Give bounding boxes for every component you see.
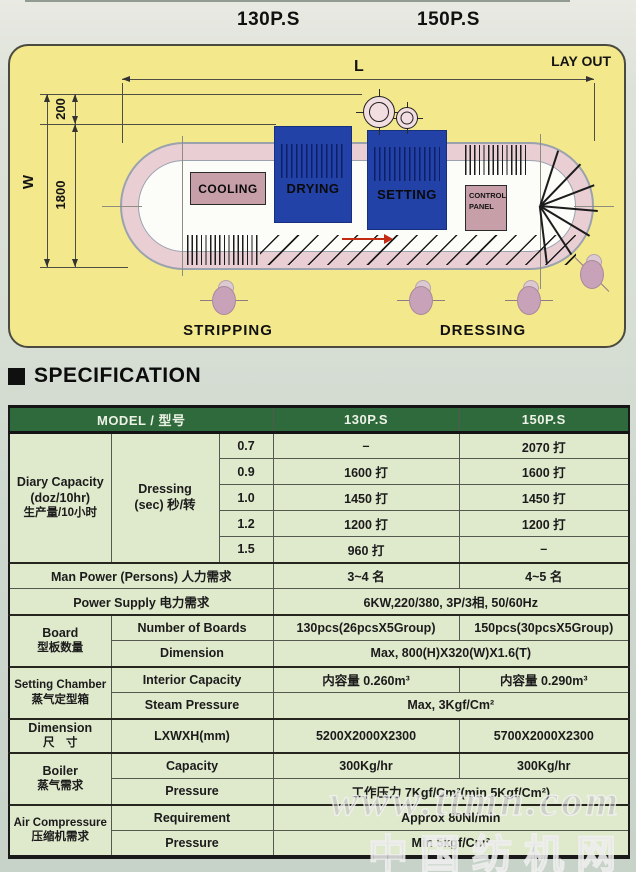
control-panel-label: CONTROL PANEL [469, 191, 506, 211]
header-130ps: 130P.S [273, 407, 459, 433]
centerline [102, 206, 142, 207]
cell-air-compressure: Air Compressure 压缩机需求 [9, 805, 111, 857]
dim-label-1800: 1800 [53, 165, 67, 225]
cell-number-of-boards: Number of Boards [111, 615, 273, 641]
boiler-line2: 蒸气需求 [12, 779, 109, 793]
dim-label-W: W [20, 152, 34, 212]
board-hatch-top [465, 145, 527, 175]
board-line2: 型板数量 [12, 641, 109, 655]
cell-value-130: 960 打 [273, 537, 459, 563]
control-panel-station: CONTROL PANEL [465, 185, 507, 231]
cell-boiler-capacity: Capacity [111, 753, 273, 779]
worker-figure [397, 284, 445, 318]
extension-line [122, 83, 123, 143]
setting-label: SETTING [377, 187, 437, 202]
cell-speed: 1.2 [219, 511, 273, 537]
cell-board-dimension-value: Max, 800(H)X320(W)X1.6(T) [273, 641, 629, 667]
diary-line3: 生产量/10小时 [12, 506, 109, 520]
board-slashes-bottom [260, 235, 576, 265]
dressing-line2: (sec) 秒/转 [114, 498, 217, 514]
chamber-line2: 蒸气定型箱 [12, 693, 109, 707]
cooling-station: COOLING [190, 172, 266, 205]
header-model: MODEL / 型号 [9, 407, 273, 433]
cell-value-150: – [459, 537, 629, 563]
dim-label-L: L [354, 58, 364, 76]
arrowhead-icon [122, 76, 130, 82]
flow-direction-arrow [342, 238, 384, 240]
board-hatch-bottom [187, 235, 259, 265]
cell-power-supply: Power Supply 电力需求 [9, 589, 273, 615]
extension-line [594, 83, 595, 141]
cooling-label: COOLING [198, 182, 258, 196]
cell-value-130: 300Kg/hr [273, 753, 459, 779]
specification-table: MODEL / 型号 130P.S 150P.S Diary Capacity … [8, 405, 630, 859]
cell-value-130: 内容量 0.260m³ [273, 667, 459, 693]
cell-boiler-pressure-value: 工作压力 7Kgf/Cm²(min 5Kgf/Cm²) [273, 779, 629, 805]
cell-value-150: 2070 打 [459, 433, 629, 459]
arrowhead-icon [72, 94, 78, 102]
specification-title: SPECIFICATION [34, 364, 201, 388]
setting-station: SETTING [367, 130, 447, 230]
cell-value-130: 130pcs(26pcsX5Group) [273, 615, 459, 641]
extension-line [40, 267, 128, 268]
cell-diary-capacity: Diary Capacity (doz/10hr) 生产量/10小时 [9, 433, 111, 563]
worker-figure [200, 284, 248, 318]
table-row: Diary Capacity (doz/10hr) 生产量/10小时 Dress… [9, 433, 629, 459]
board-line1: Board [12, 626, 109, 642]
air-line2: 压缩机需求 [12, 830, 109, 844]
cell-board: Board 型板数量 [9, 615, 111, 667]
stripping-position-label: STRIPPING [158, 322, 298, 339]
air-line1: Air Compressure [12, 816, 109, 830]
cell-boiler-pressure: Pressure [111, 779, 273, 805]
cell-dressing: Dressing (sec) 秒/转 [111, 433, 219, 563]
cell-value-150: 4~5 名 [459, 563, 629, 589]
spec-sheet-page: 130P.S 150P.S LAY OUT L 200 1800 W [0, 0, 636, 872]
dressing-position-label: DRESSING [413, 322, 553, 339]
cell-value-150: 5700X2000X2300 [459, 719, 629, 753]
centerline [182, 136, 183, 276]
model-title-130: 130P.S [237, 9, 300, 31]
model-title-150: 150P.S [417, 9, 480, 31]
dim-line-L [122, 79, 594, 80]
cell-value-150: 1600 打 [459, 459, 629, 485]
arrowhead-icon [72, 124, 78, 132]
cell-value-150: 1450 打 [459, 485, 629, 511]
cell-value-150: 150pcs(30pcsX5Group) [459, 615, 629, 641]
cell-value-130: 1200 打 [273, 511, 459, 537]
layout-diagram-panel: LAY OUT L 200 1800 W [8, 44, 626, 348]
cell-value-130: 5200X2000X2300 [273, 719, 459, 753]
centerline [574, 206, 614, 207]
drying-hatch [281, 144, 345, 178]
cell-value-130: 3~4 名 [273, 563, 459, 589]
boiler-line1: Boiler [12, 764, 109, 780]
steam-fan-icon [363, 96, 395, 128]
cell-air-requirement-value: Approx 80Nl/min [273, 805, 629, 831]
arrowhead-icon [44, 259, 50, 267]
cell-boiler: Boiler 蒸气需求 [9, 753, 111, 805]
cell-speed: 0.7 [219, 433, 273, 459]
cell-value-130: – [273, 433, 459, 459]
setting-hatch [374, 147, 440, 181]
arrowhead-icon [72, 116, 78, 124]
cell-value-150: 300Kg/hr [459, 753, 629, 779]
scan-edge-line [25, 0, 570, 2]
table-row: Power Supply 电力需求 6KW,220/380, 3P/3相, 50… [9, 589, 629, 615]
cell-steam-pressure: Steam Pressure [111, 693, 273, 719]
cell-interior-capacity: Interior Capacity [111, 667, 273, 693]
table-row: Setting Chamber 蒸气定型箱 Interior Capacity … [9, 667, 629, 693]
cell-speed: 1.0 [219, 485, 273, 511]
worker-figure [568, 258, 616, 292]
dimension-line1: Dimension [12, 721, 109, 737]
cell-man-power: Man Power (Persons) 人力需求 [9, 563, 273, 589]
drying-label: DRYING [286, 181, 339, 196]
cell-air-pressure-value: Min 5kgf/Cm² [273, 831, 629, 857]
table-row: Board 型板数量 Number of Boards 130pcs(26pcs… [9, 615, 629, 641]
worker-figure [505, 284, 553, 318]
table-row: Air Compressure 压缩机需求 Requirement Approx… [9, 805, 629, 831]
extension-line [40, 94, 362, 95]
table-row: Man Power (Persons) 人力需求 3~4 名 4~5 名 [9, 563, 629, 589]
dim-line-W [47, 94, 48, 267]
square-bullet-icon [8, 368, 25, 385]
cell-speed: 1.5 [219, 537, 273, 563]
cell-dimension: Dimension 尺 寸 [9, 719, 111, 753]
cell-value-130: 1600 打 [273, 459, 459, 485]
cell-power-value: 6KW,220/380, 3P/3相, 50/60Hz [273, 589, 629, 615]
cell-steam-pressure-value: Max, 3Kgf/Cm² [273, 693, 629, 719]
table-row: Boiler 蒸气需求 Capacity 300Kg/hr 300Kg/hr [9, 753, 629, 779]
layout-title: LAY OUT [551, 53, 611, 69]
table-row: Dimension 尺 寸 LXWXH(mm) 5200X2000X2300 5… [9, 719, 629, 753]
cell-board-dimension: Dimension [111, 641, 273, 667]
arrowhead-icon [44, 94, 50, 102]
drying-station: DRYING [274, 126, 352, 223]
dimension-line2: 尺 寸 [12, 736, 109, 750]
header-150ps: 150P.S [459, 407, 629, 433]
cell-air-pressure: Pressure [111, 831, 273, 857]
cell-setting-chamber: Setting Chamber 蒸气定型箱 [9, 667, 111, 719]
cell-value-150: 内容量 0.290m³ [459, 667, 629, 693]
diary-line2: (doz/10hr) [12, 491, 109, 507]
cell-speed: 0.9 [219, 459, 273, 485]
chamber-line1: Setting Chamber [12, 678, 109, 692]
dim-label-200: 200 [53, 79, 67, 139]
arrowhead-icon [72, 259, 78, 267]
diary-line1: Diary Capacity [12, 475, 109, 491]
cell-value-130: 1450 打 [273, 485, 459, 511]
cell-lxwxh: LXWXH(mm) [111, 719, 273, 753]
specification-heading: SPECIFICATION [8, 364, 201, 388]
cell-air-requirement: Requirement [111, 805, 273, 831]
steam-fan-icon [396, 107, 418, 129]
table-header-row: MODEL / 型号 130P.S 150P.S [9, 407, 629, 433]
dressing-line1: Dressing [114, 482, 217, 498]
cell-value-150: 1200 打 [459, 511, 629, 537]
arrowhead-icon [586, 76, 594, 82]
